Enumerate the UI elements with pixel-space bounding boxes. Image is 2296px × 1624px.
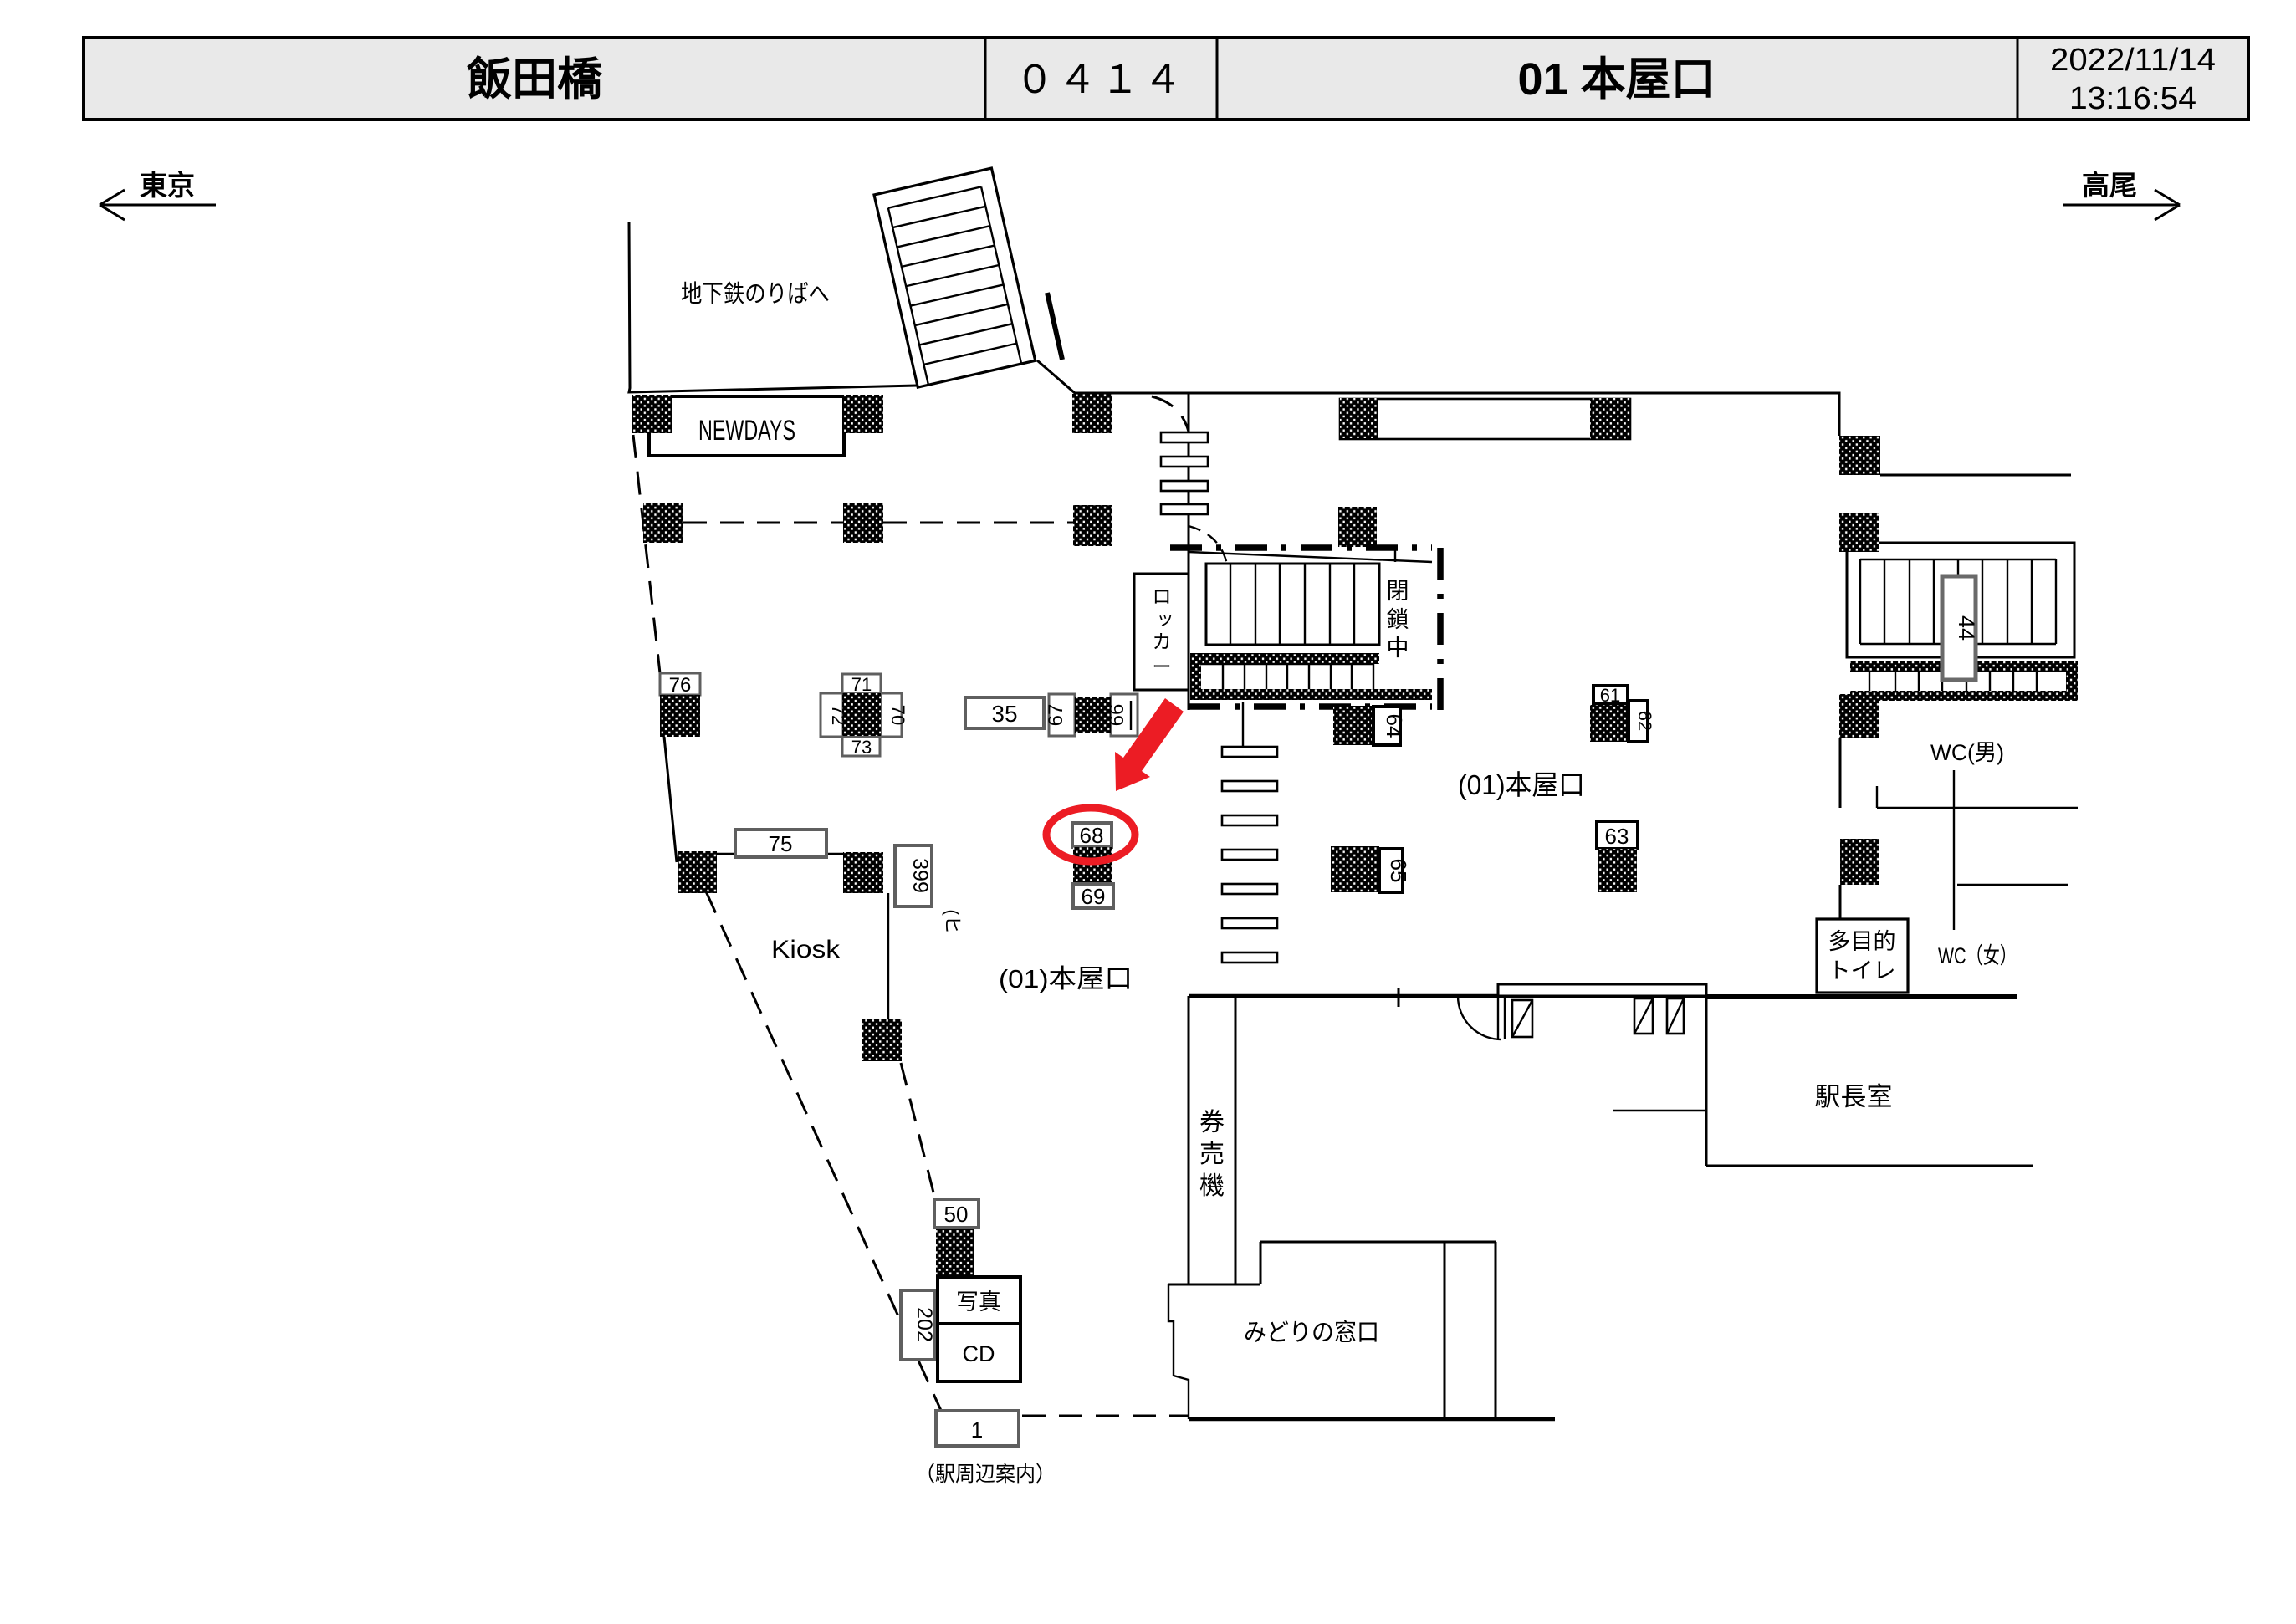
- svg-text:WC(男): WC(男): [1930, 740, 2004, 765]
- svg-text:飯田橋: 飯田橋: [467, 54, 603, 105]
- svg-text:WC（女）: WC（女）: [1938, 943, 2017, 968]
- svg-text:カ: カ: [1153, 631, 1172, 652]
- svg-text:65: 65: [1386, 859, 1411, 883]
- svg-text:券: 券: [1199, 1109, 1225, 1136]
- svg-text:1: 1: [971, 1417, 983, 1443]
- svg-text:多目的: 多目的: [1828, 929, 1896, 954]
- svg-text:68: 68: [1080, 823, 1104, 848]
- svg-text:地下鉄のりばへ: 地下鉄のりばへ: [681, 280, 830, 308]
- svg-text:35: 35: [991, 701, 1017, 727]
- svg-text:76: 76: [669, 674, 692, 697]
- svg-text:75: 75: [769, 831, 793, 856]
- svg-text:Kiosk: Kiosk: [771, 936, 841, 963]
- svg-text:写真: 写真: [956, 1289, 1001, 1315]
- svg-text:67: 67: [1045, 704, 1067, 727]
- svg-text:44: 44: [1954, 615, 1979, 641]
- svg-text:71: 71: [851, 674, 872, 695]
- svg-text:2022/11/14: 2022/11/14: [2050, 43, 2216, 78]
- svg-text:駅長室: 駅長室: [1815, 1082, 1893, 1111]
- svg-text:閉: 閉: [1387, 579, 1409, 604]
- svg-text:売: 売: [1199, 1141, 1225, 1168]
- svg-text:73: 73: [851, 737, 872, 758]
- svg-text:70: 70: [887, 705, 908, 725]
- svg-text:ロ: ロ: [1153, 585, 1172, 607]
- svg-text:399: 399: [908, 858, 932, 893]
- svg-text:東京: 東京: [140, 170, 195, 201]
- svg-text:202: 202: [913, 1307, 936, 1342]
- svg-text:63: 63: [1605, 824, 1629, 849]
- svg-text:(01)本屋口: (01)本屋口: [1458, 769, 1585, 800]
- svg-text:（駅周辺案内）: （駅周辺案内）: [915, 1463, 1056, 1486]
- svg-text:61: 61: [1600, 685, 1620, 706]
- svg-text:中: 中: [1387, 636, 1409, 661]
- svg-text:みどりの窓口: みどりの窓口: [1244, 1319, 1379, 1346]
- svg-text:CD: CD: [963, 1341, 995, 1366]
- svg-text:０４１４: ０４１４: [1015, 58, 1186, 101]
- svg-text:鎖: 鎖: [1387, 607, 1409, 632]
- svg-text:高尾: 高尾: [2082, 170, 2137, 201]
- svg-text:NEWDAYS: NEWDAYS: [698, 415, 795, 447]
- svg-text:13:16:54: 13:16:54: [2069, 81, 2196, 116]
- svg-text:(ヒ: (ヒ: [942, 909, 963, 933]
- svg-text:62: 62: [1634, 711, 1655, 731]
- svg-text:機: 機: [1199, 1172, 1225, 1200]
- svg-text:ッ: ッ: [1157, 610, 1174, 629]
- svg-text:ー: ー: [1153, 656, 1172, 677]
- svg-text:トイレ: トイレ: [1828, 958, 1896, 983]
- svg-text:50: 50: [944, 1202, 969, 1227]
- svg-text:(01)本屋口: (01)本屋口: [999, 964, 1133, 993]
- svg-text:64: 64: [1382, 714, 1407, 738]
- svg-text:69: 69: [1082, 884, 1106, 909]
- svg-text:01 本屋口: 01 本屋口: [1517, 54, 1716, 105]
